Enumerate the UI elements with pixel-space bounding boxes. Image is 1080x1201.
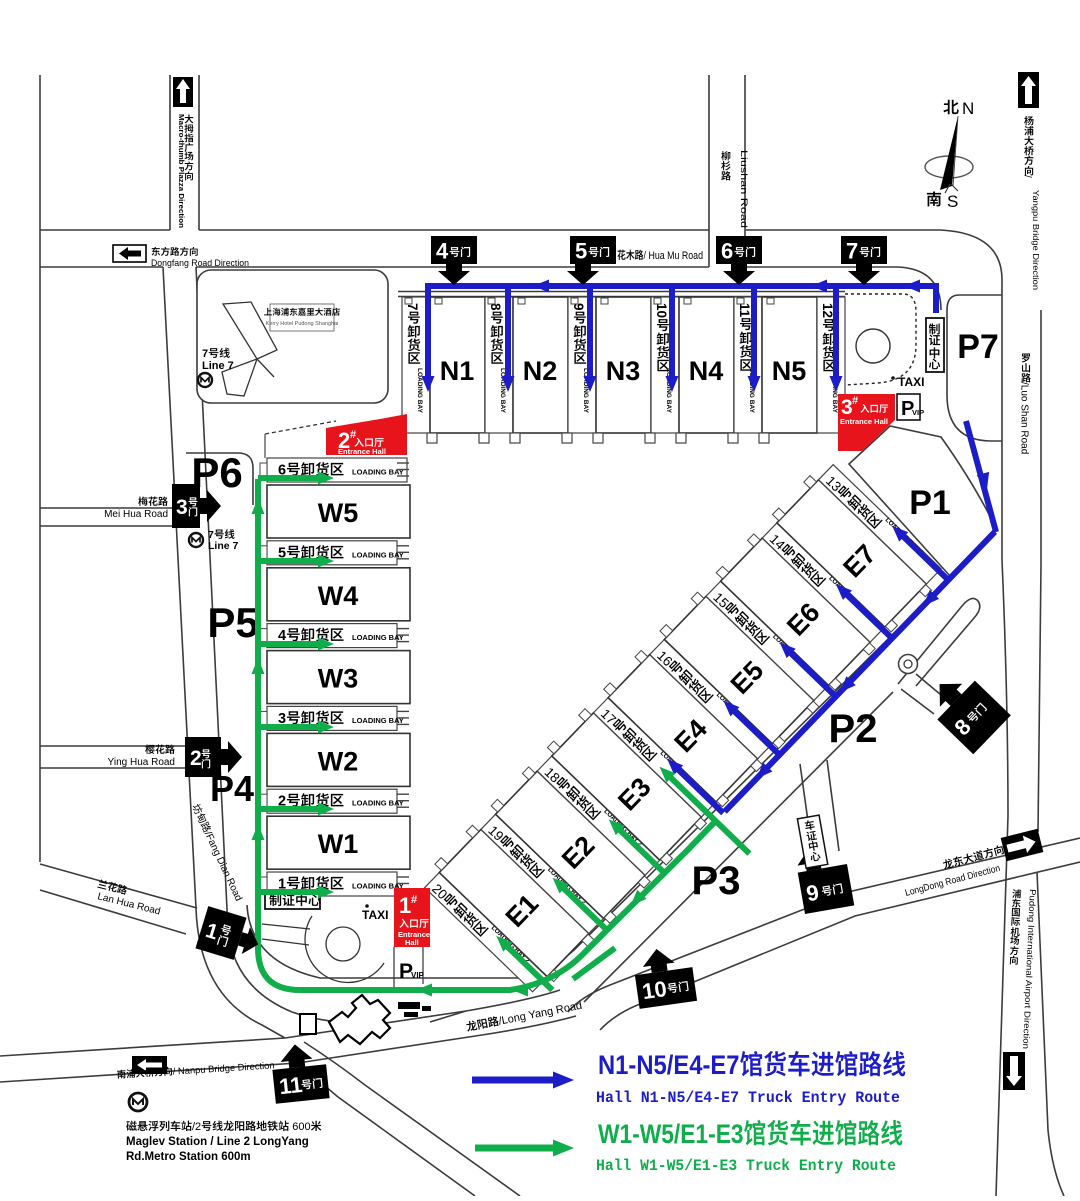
svg-text:号门: 号门 [859, 244, 881, 260]
svg-text:S: S [947, 192, 958, 211]
svg-text:N: N [962, 99, 974, 118]
svg-text:号门: 号门 [588, 244, 610, 260]
svg-text:入口厅: 入口厅 [399, 915, 429, 930]
svg-text:东方路方向: 东方路方向 [151, 244, 199, 258]
svg-text:梅花路: 梅花路 [138, 493, 168, 508]
svg-text:Entrance Hall: Entrance Hall [840, 417, 888, 426]
svg-text:号门: 号门 [734, 244, 756, 260]
svg-text:W1-W5/E1-E3馆货车进馆路线: W1-W5/E1-E3馆货车进馆路线 [598, 1112, 903, 1151]
svg-text:柳杉路: 柳杉路 [719, 150, 734, 180]
svg-text:7号卸货区: 7号卸货区 [404, 303, 424, 365]
svg-text:Line 7: Line 7 [202, 360, 234, 372]
svg-text:5: 5 [575, 239, 587, 264]
svg-text:8号卸货区: 8号卸货区 [487, 303, 507, 365]
svg-text:号门: 号门 [300, 1075, 324, 1093]
svg-text:11: 11 [278, 1072, 304, 1099]
svg-text:磁悬浮列车站/2号线龙阳路地铁站 600米: 磁悬浮列车站/2号线龙阳路地铁站 600米 [126, 1118, 322, 1134]
svg-text:N2: N2 [523, 356, 558, 386]
svg-text:LOADING BAY: LOADING BAY [416, 368, 423, 414]
svg-text:10: 10 [641, 976, 669, 1004]
svg-text:罗山路/Luo Shan Road: 罗山路/Luo Shan Road [1019, 352, 1034, 454]
svg-text:号门: 号门 [449, 244, 471, 260]
svg-text:Maglev Station / Line 2 LongYa: Maglev Station / Line 2 LongYang [126, 1136, 309, 1148]
svg-text:7: 7 [846, 239, 858, 264]
svg-text:P2: P2 [829, 707, 878, 751]
svg-text:LOADING BAY: LOADING BAY [499, 368, 506, 414]
svg-text:制证中心: 制证中心 [926, 322, 943, 370]
svg-text:号门: 号门 [666, 978, 690, 997]
svg-text:Ying Hua Road: Ying Hua Road [108, 757, 175, 768]
svg-text:Rd.Metro Station 600m: Rd.Metro Station 600m [126, 1151, 251, 1163]
svg-text:花木路/ Hua Mu Road: 花木路/ Hua Mu Road [617, 247, 703, 263]
svg-text:TAXI: TAXI [898, 375, 924, 389]
svg-text:号门: 号门 [199, 748, 214, 768]
svg-text:樱花路: 樱花路 [145, 741, 175, 756]
svg-text:Hall N1-N5/E4-E7 Truck Entry R: Hall N1-N5/E4-E7 Truck Entry Route [596, 1089, 900, 1107]
svg-text:Hall W1-W5/E1-E3 Truck Entry R: Hall W1-W5/E1-E3 Truck Entry Route [596, 1157, 896, 1175]
svg-text:6: 6 [721, 239, 733, 264]
svg-text:LOADING BAY: LOADING BAY [352, 468, 404, 477]
svg-text:号门: 号门 [186, 496, 201, 516]
svg-text:#: # [411, 894, 417, 906]
svg-text:入口厅: 入口厅 [860, 401, 889, 415]
svg-text:LOADING BAY: LOADING BAY [352, 633, 404, 642]
svg-text:P1: P1 [909, 484, 951, 522]
svg-text:TAXI: TAXI [362, 908, 388, 922]
svg-text:Macro-thumb Plazza Direction: Macro-thumb Plazza Direction [177, 114, 186, 228]
svg-text:Line 7: Line 7 [208, 540, 239, 552]
svg-text:P3: P3 [692, 859, 741, 903]
svg-text:Hall: Hall [405, 938, 419, 947]
svg-text:Dongfang Road Direction: Dongfang Road Direction [151, 258, 249, 269]
svg-text:W4: W4 [318, 581, 359, 611]
svg-text:4: 4 [436, 239, 449, 264]
svg-text:Yangpu Bridge Direction: Yangpu Bridge Direction [1031, 190, 1040, 290]
svg-text:南: 南 [926, 186, 942, 210]
svg-text:LOADING BAY: LOADING BAY [352, 716, 404, 725]
svg-text:#: # [852, 395, 858, 407]
svg-text:N1-N5/E4-E7馆货车进馆路线: N1-N5/E4-E7馆货车进馆路线 [598, 1043, 906, 1082]
svg-text:W5: W5 [318, 498, 359, 528]
svg-text:上海浦东嘉里大酒店: 上海浦东嘉里大酒店 [264, 306, 341, 318]
svg-text:P7: P7 [957, 328, 999, 366]
svg-text:W1: W1 [318, 829, 359, 859]
svg-text:VIP: VIP [411, 971, 425, 980]
svg-text:Kerry Hotel Pudong Shanghai: Kerry Hotel Pudong Shanghai [266, 321, 339, 327]
svg-text:Mei Hua Road: Mei Hua Road [104, 509, 168, 520]
svg-text:N1: N1 [440, 356, 475, 386]
svg-text:LOADING BAY: LOADING BAY [352, 799, 404, 808]
svg-text:VIP: VIP [912, 408, 924, 417]
svg-text:杨浦大桥方向/: 杨浦大桥方向/ [1022, 115, 1037, 178]
svg-text:LOADING BAY: LOADING BAY [352, 550, 404, 559]
svg-text:P5: P5 [207, 599, 258, 646]
svg-text:W3: W3 [318, 664, 359, 694]
svg-text:Liushan Road: Liushan Road [739, 150, 749, 228]
svg-text:N5: N5 [772, 356, 807, 386]
svg-text:7号线: 7号线 [202, 345, 230, 361]
svg-text:W2: W2 [318, 746, 359, 776]
svg-text:N3: N3 [606, 356, 641, 386]
svg-text:北: 北 [943, 94, 959, 118]
svg-text:Entrance Hall: Entrance Hall [338, 447, 386, 456]
svg-text:N4: N4 [689, 356, 724, 386]
svg-text:3: 3 [841, 396, 853, 419]
